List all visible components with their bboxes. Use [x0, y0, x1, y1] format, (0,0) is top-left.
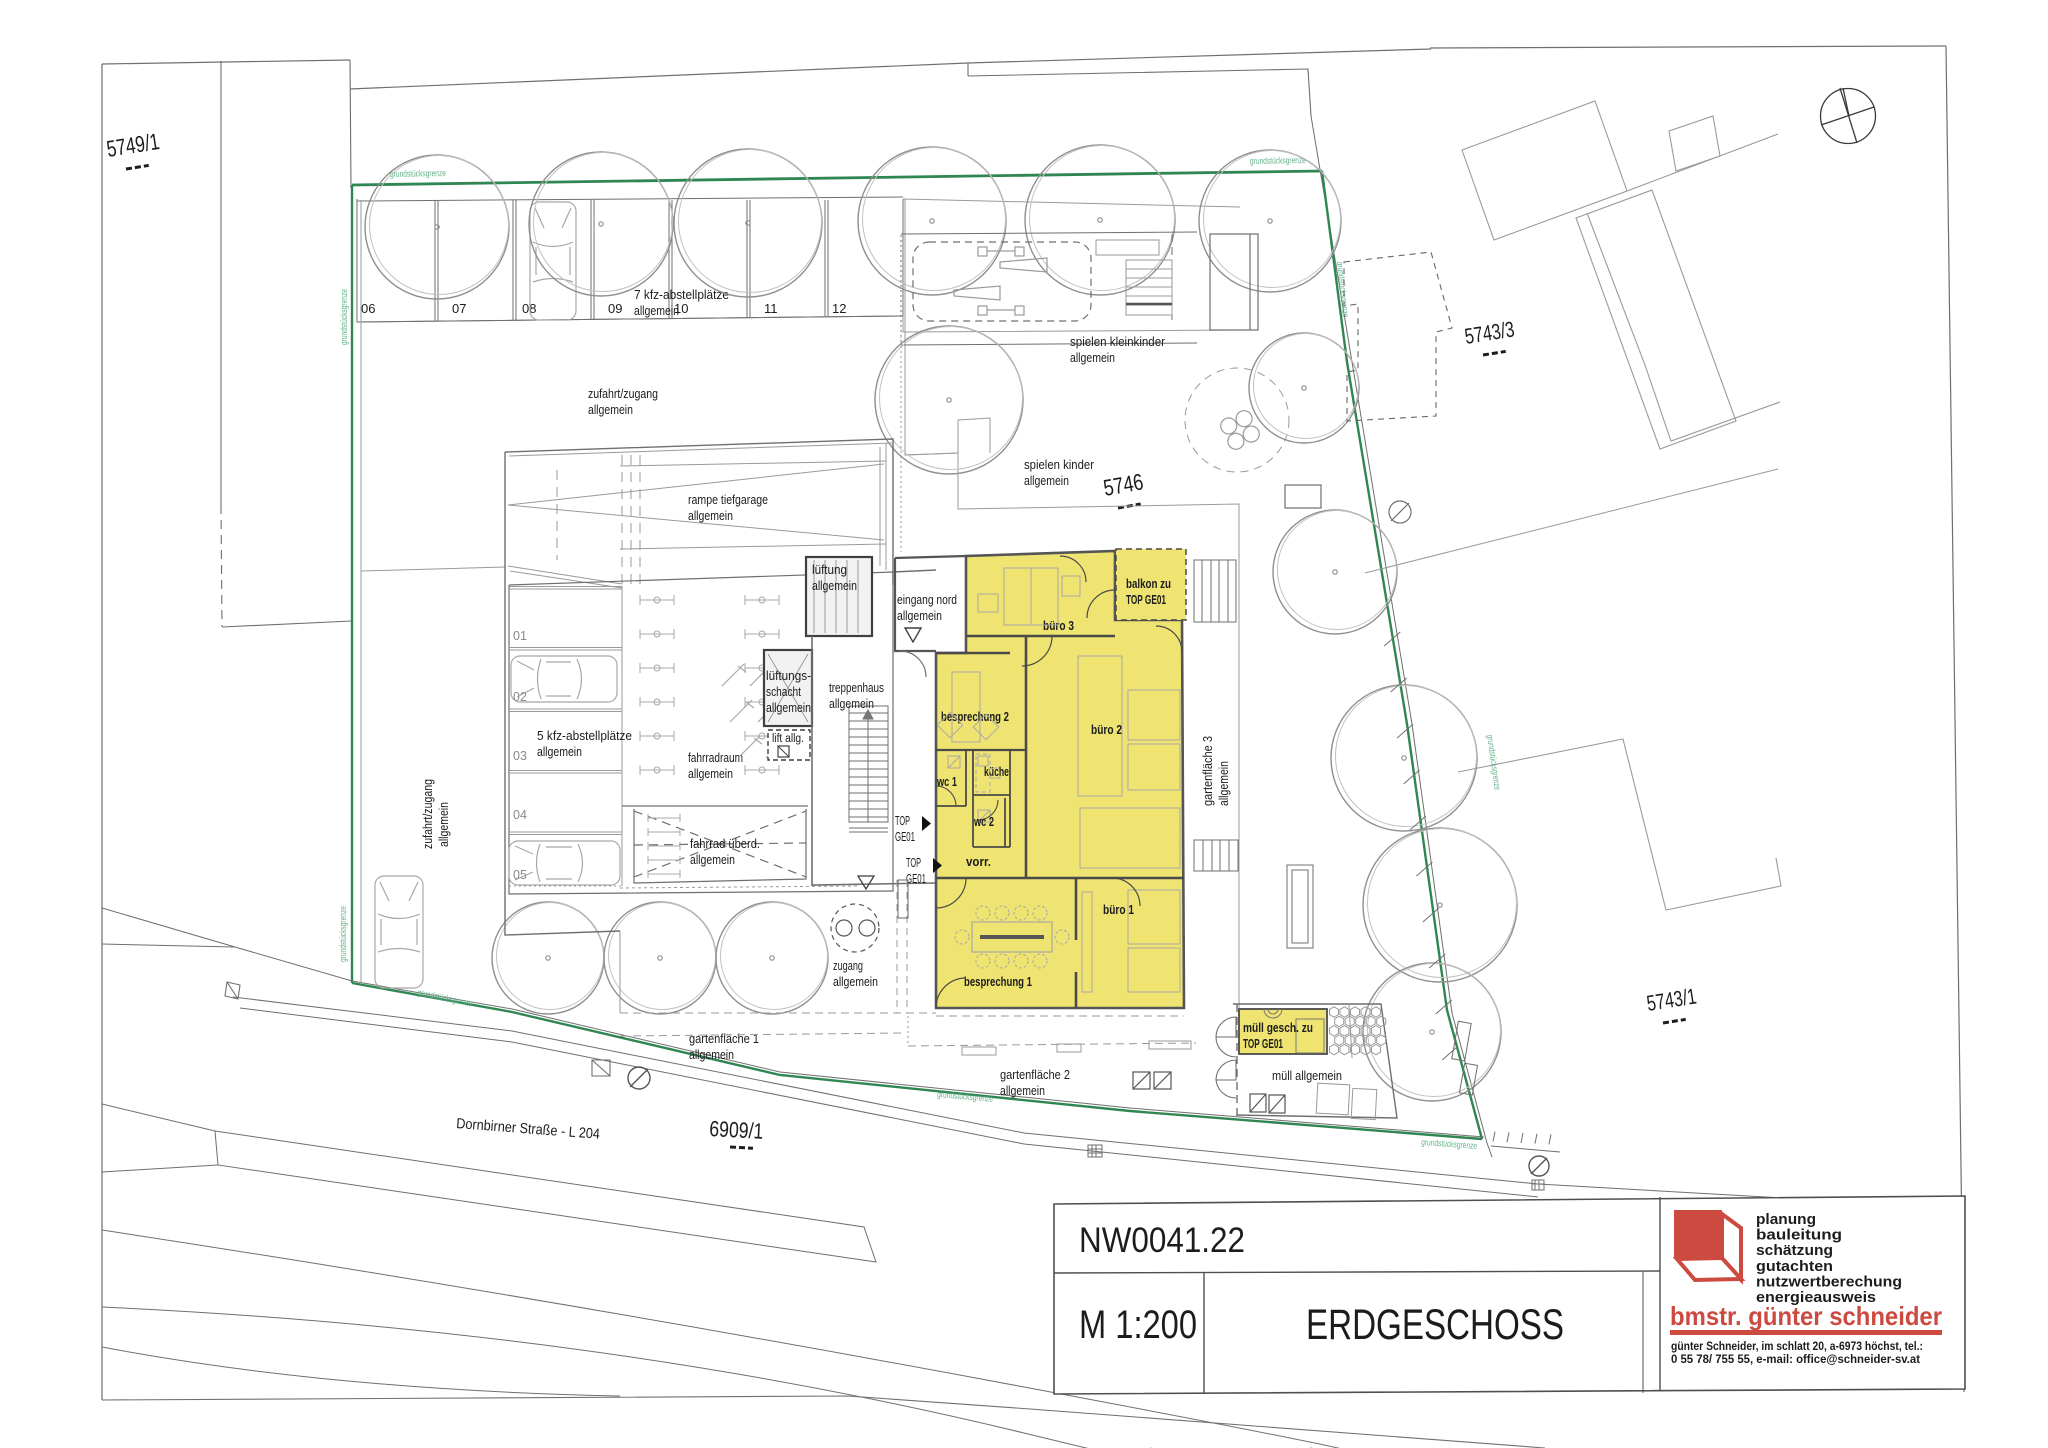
- svg-text:M 1:200: M 1:200: [1079, 1303, 1197, 1347]
- svg-text:schacht: schacht: [766, 685, 801, 699]
- svg-text:besprechung 1: besprechung 1: [964, 975, 1032, 989]
- svg-text:0 55 78/ 755 55, e-mail: 0 55 78/ 755 55, e-mail: office@schneide…: [1671, 1354, 1920, 1366]
- svg-text:TOP GE01: TOP GE01: [1126, 593, 1166, 607]
- svg-text:allgemein: allgemein: [537, 745, 582, 759]
- svg-text:ERDGESCHOSS: ERDGESCHOSS: [1306, 1301, 1564, 1349]
- svg-text:allgemein: allgemein: [1024, 474, 1069, 488]
- svg-text:allgemein: allgemein: [812, 579, 857, 593]
- svg-text:allgemein: allgemein: [1217, 761, 1231, 806]
- svg-text:allgemein: allgemein: [689, 1048, 734, 1062]
- svg-text:büro 1: büro 1: [1103, 903, 1134, 917]
- svg-text:allgemein: allgemein: [634, 304, 679, 318]
- svg-text:wc 2: wc 2: [973, 815, 994, 829]
- svg-text:allgemein: allgemein: [437, 802, 451, 847]
- svg-text:grundstücksgrenze: grundstücksgrenze: [390, 168, 446, 179]
- svg-text:allgemein: allgemein: [833, 975, 878, 989]
- svg-text:grundstücksgrenze: grundstücksgrenze: [338, 906, 348, 962]
- svg-text:03: 03: [513, 749, 527, 763]
- svg-text:allgemein: allgemein: [588, 403, 633, 417]
- svg-text:günter Schneider, im schlatt: günter Schneider, im schlatt 20, a-6973 …: [1671, 1341, 1923, 1353]
- svg-text:allgemein: allgemein: [688, 767, 733, 781]
- svg-text:lüftung: lüftung: [812, 563, 847, 577]
- svg-text:balkon zu: balkon zu: [1126, 577, 1171, 591]
- svg-text:vorr.: vorr.: [966, 855, 991, 869]
- svg-text:lift allg.: lift allg.: [772, 733, 804, 745]
- svg-text:gartenfläche 3: gartenfläche 3: [1201, 736, 1215, 806]
- svg-text:allgemein: allgemein: [690, 853, 735, 867]
- svg-text:spielen kinder: spielen kinder: [1024, 458, 1094, 472]
- svg-text:allgemein: allgemein: [897, 609, 942, 623]
- svg-text:besprechung 2: besprechung 2: [941, 710, 1009, 724]
- svg-text:müll allgemein: müll allgemein: [1272, 1069, 1342, 1083]
- svg-text:12: 12: [832, 301, 846, 316]
- svg-text:allgemein: allgemein: [1000, 1084, 1045, 1098]
- svg-text:grundstücksgrenze: grundstücksgrenze: [1250, 155, 1306, 166]
- svg-text:01: 01: [513, 629, 527, 643]
- svg-text:lüftungs-: lüftungs-: [766, 669, 811, 683]
- svg-text:07: 07: [452, 301, 466, 316]
- svg-text:gartenfläche 1: gartenfläche 1: [689, 1032, 759, 1046]
- svg-text:fahrradraum: fahrradraum: [688, 751, 743, 765]
- svg-text:allgemein: allgemein: [1070, 351, 1115, 365]
- svg-text:fahrrad überd.: fahrrad überd.: [690, 837, 760, 851]
- svg-text:6909/1: 6909/1: [709, 1116, 764, 1144]
- svg-text:TOP GE01: TOP GE01: [1243, 1037, 1283, 1051]
- svg-text:GE01: GE01: [895, 830, 915, 844]
- svg-text:treppenhaus: treppenhaus: [829, 681, 884, 695]
- svg-text:5 kfz-abstellplätze: 5 kfz-abstellplätze: [537, 729, 632, 743]
- svg-text:allgemein: allgemein: [766, 701, 811, 715]
- svg-text:grundstücksgrenze: grundstücksgrenze: [339, 289, 349, 345]
- svg-text:zufahrt/zugang: zufahrt/zugang: [421, 779, 435, 849]
- svg-text:11: 11: [764, 301, 778, 316]
- svg-text:NW0041.22: NW0041.22: [1079, 1221, 1245, 1260]
- svg-text:wc 1: wc 1: [936, 775, 957, 789]
- svg-text:08: 08: [522, 301, 536, 316]
- svg-text:allgemein: allgemein: [688, 509, 733, 523]
- svg-text:09: 09: [608, 301, 622, 316]
- svg-text:bauleitung: bauleitung: [1756, 1228, 1842, 1244]
- svg-text:büro 3: büro 3: [1043, 619, 1074, 633]
- svg-text:allgemein: allgemein: [829, 697, 874, 711]
- svg-text:büro 2: büro 2: [1091, 723, 1122, 737]
- svg-text:7 kfz-abstellplätze: 7 kfz-abstellplätze: [634, 288, 729, 302]
- svg-text:planung: planung: [1756, 1212, 1816, 1228]
- svg-text:TOP: TOP: [895, 814, 910, 828]
- svg-text:bmstr. günter schneider: bmstr. günter schneider: [1670, 1301, 1942, 1331]
- svg-text:gutachten: gutachten: [1756, 1259, 1833, 1275]
- svg-text:06: 06: [361, 301, 375, 316]
- svg-text:gartenfläche 2: gartenfläche 2: [1000, 1068, 1070, 1082]
- svg-text:zugang: zugang: [833, 959, 863, 973]
- svg-text:04: 04: [513, 808, 527, 822]
- svg-text:schätzung: schätzung: [1756, 1243, 1833, 1259]
- svg-text:GE01: GE01: [906, 872, 926, 886]
- svg-text:rampe tiefgarage: rampe tiefgarage: [688, 493, 768, 507]
- svg-text:zufahrt/zugang: zufahrt/zugang: [588, 387, 658, 401]
- svg-text:nutzwertberechung: nutzwertberechung: [1756, 1274, 1902, 1290]
- svg-text:müll gesch. zu: müll gesch. zu: [1243, 1021, 1313, 1035]
- svg-text:küche: küche: [984, 765, 1009, 779]
- svg-text:eingang nord: eingang nord: [897, 593, 957, 607]
- svg-text:spielen kleinkinder: spielen kleinkinder: [1070, 335, 1165, 349]
- svg-text:TOP: TOP: [906, 856, 921, 870]
